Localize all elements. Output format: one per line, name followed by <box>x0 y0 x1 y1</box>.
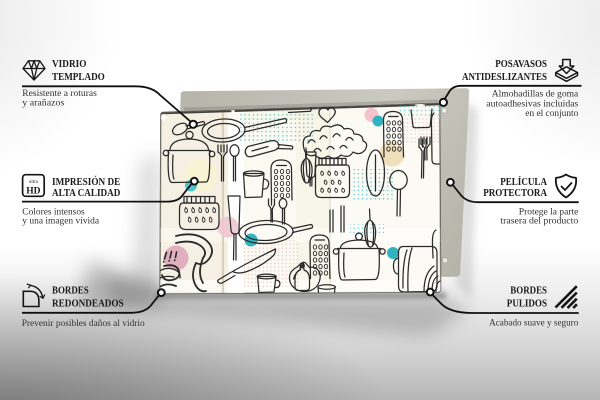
svg-text:REDONDEADOS: REDONDEADOS <box>52 298 124 309</box>
svg-text:trasera del producto: trasera del producto <box>500 216 578 227</box>
svg-text:HD: HD <box>26 186 40 196</box>
svg-text:ALTA CALIDAD: ALTA CALIDAD <box>52 188 121 199</box>
svg-text:PULIDOS: PULIDOS <box>507 298 547 309</box>
svg-text:BORDES: BORDES <box>510 285 547 296</box>
svg-text:POSAVASOS: POSAVASOS <box>495 59 547 70</box>
svg-text:y arañazos: y arañazos <box>22 97 64 108</box>
svg-text:y una imagen vívida: y una imagen vívida <box>22 216 99 227</box>
svg-text:PROTECTORA: PROTECTORA <box>483 188 547 199</box>
svg-text:Prevenir posibles daños al vid: Prevenir posibles daños al vidrio <box>22 318 145 329</box>
svg-text:en el conjunto: en el conjunto <box>525 108 578 119</box>
svg-text:BORDES: BORDES <box>52 285 89 296</box>
svg-text:Acabado suave y seguro: Acabado suave y seguro <box>489 318 578 329</box>
svg-text:TEMPLADO: TEMPLADO <box>52 72 105 83</box>
svg-text:IMPRESIÓN DE: IMPRESIÓN DE <box>52 176 120 188</box>
svg-text:ANTIDESLIZANTES: ANTIDESLIZANTES <box>462 72 547 83</box>
svg-text:VIDRIO: VIDRIO <box>52 59 86 70</box>
svg-text:PELÍCULA: PELÍCULA <box>500 176 547 188</box>
svg-text:ultra: ultra <box>29 180 39 185</box>
